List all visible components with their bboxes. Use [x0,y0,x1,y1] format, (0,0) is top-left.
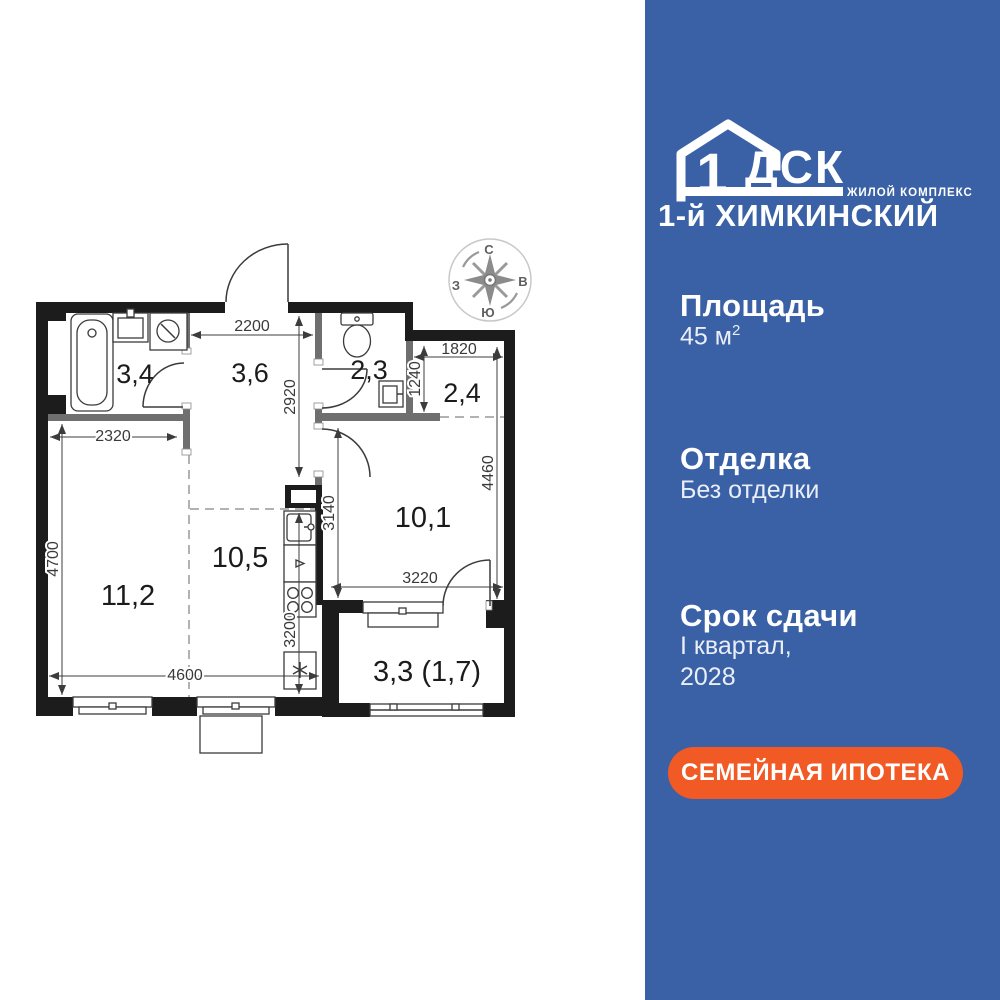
finish-value: Без отделки [680,476,819,505]
bedroom-door [322,429,370,477]
family-mortgage-button[interactable]: СЕМЕЙНАЯ ИПОТЕКА [668,747,963,799]
dim-bottom-width: 4600 [49,667,319,684]
listing-card: 2200 2320 1820 3220 4600 [0,0,1000,1000]
finish-title: Отделка [680,441,810,477]
svg-text:1240: 1240 [407,361,424,397]
washing-machine-icon [150,313,187,350]
svg-text:4600: 4600 [167,667,203,684]
room-label-kitchen: 10,5 [212,542,268,574]
complex-name: 1-й ХИМКИНСКИЙ [658,197,938,233]
vent-shaft [285,485,322,508]
dim-bedroom-inner-depth: 3140 [321,428,342,598]
bathroom-sink-icon [113,309,148,342]
svg-text:3220: 3220 [402,570,438,587]
logo-underline [680,187,843,196]
dim-wardrobe-width: 1820 [414,341,503,361]
floorplan: 2200 2320 1820 3220 4600 [0,0,645,1000]
room-label-balcony: 3,3 (1,7) [373,656,481,688]
svg-text:3200: 3200 [282,612,299,648]
room-label-bathroom: 3,4 [116,359,154,389]
dim-living-depth: 4700 [45,424,66,695]
svg-text:4700: 4700 [45,541,62,577]
area-value: 45 м2 [680,322,740,351]
room-label-toilet: 2,3 [350,355,388,385]
brand-logo: 1 ДСК ЖИЛОЙ КОМПЛЕКС 1-й ХИМКИНСКИЙ [650,116,980,236]
logo-letters: ДСК [745,141,845,193]
living-window [73,697,152,714]
room-label-living: 11,2 [101,580,155,612]
entrance-door [226,244,288,302]
area-value-text: 45 м [680,322,732,350]
dim-bedroom-width: 3220 [331,570,503,591]
deadline-quarter: I квартал, [680,632,792,661]
deadline-year: 2028 [680,663,736,692]
room-label-hallway: 3,6 [231,358,269,388]
dim-bath-width: 2320 [50,428,177,445]
svg-text:2200: 2200 [234,318,270,335]
fridge-icon [284,652,316,689]
dim-hall-width: 2200 [191,318,313,339]
room-label-bedroom: 10,1 [395,502,451,534]
deadline-title: Срок сдачи [680,598,858,634]
compass-west: З [452,278,460,293]
compass-east: В [518,274,527,289]
ac-basket [200,716,262,753]
stove-icon [284,582,316,617]
svg-text:4460: 4460 [480,455,497,491]
balcony-door [443,560,490,606]
kitchen-unit [284,511,316,689]
area-value-sup: 2 [732,322,740,339]
dim-hall-depth: 2920 [282,316,303,477]
room-label-wardrobe: 2,4 [443,378,481,408]
kitchen-window [197,697,275,714]
compass-south: Ю [481,305,494,320]
svg-text:3140: 3140 [321,495,338,531]
compass-north: С [484,242,494,257]
compass-icon: С В З Ю [449,239,531,321]
toilet-icon [341,313,373,357]
balcony-window [363,602,443,627]
bathtub-icon [71,314,113,411]
svg-text:1820: 1820 [441,341,477,358]
area-title: Площадь [680,288,825,324]
svg-text:2320: 2320 [95,428,131,445]
balcony-glazing [370,704,483,716]
svg-text:2920: 2920 [282,379,299,415]
